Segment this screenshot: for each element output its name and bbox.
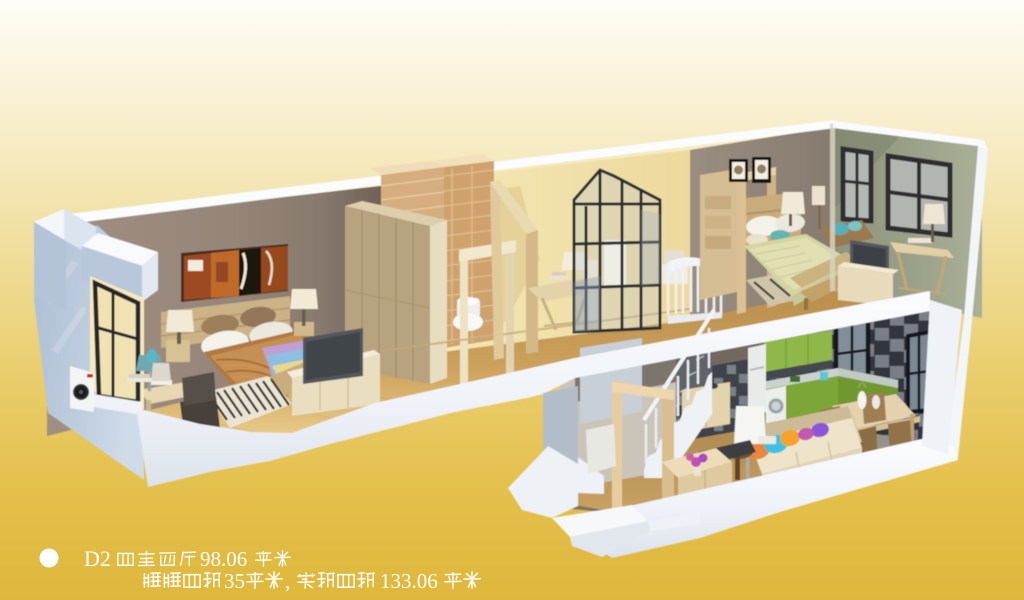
svg-text:133.06: 133.06 <box>380 569 438 593</box>
svg-text:35: 35 <box>224 569 245 593</box>
svg-text:,: , <box>285 569 290 593</box>
svg-text:98.06: 98.06 <box>200 547 247 571</box>
svg-text:D2: D2 <box>84 546 111 571</box>
